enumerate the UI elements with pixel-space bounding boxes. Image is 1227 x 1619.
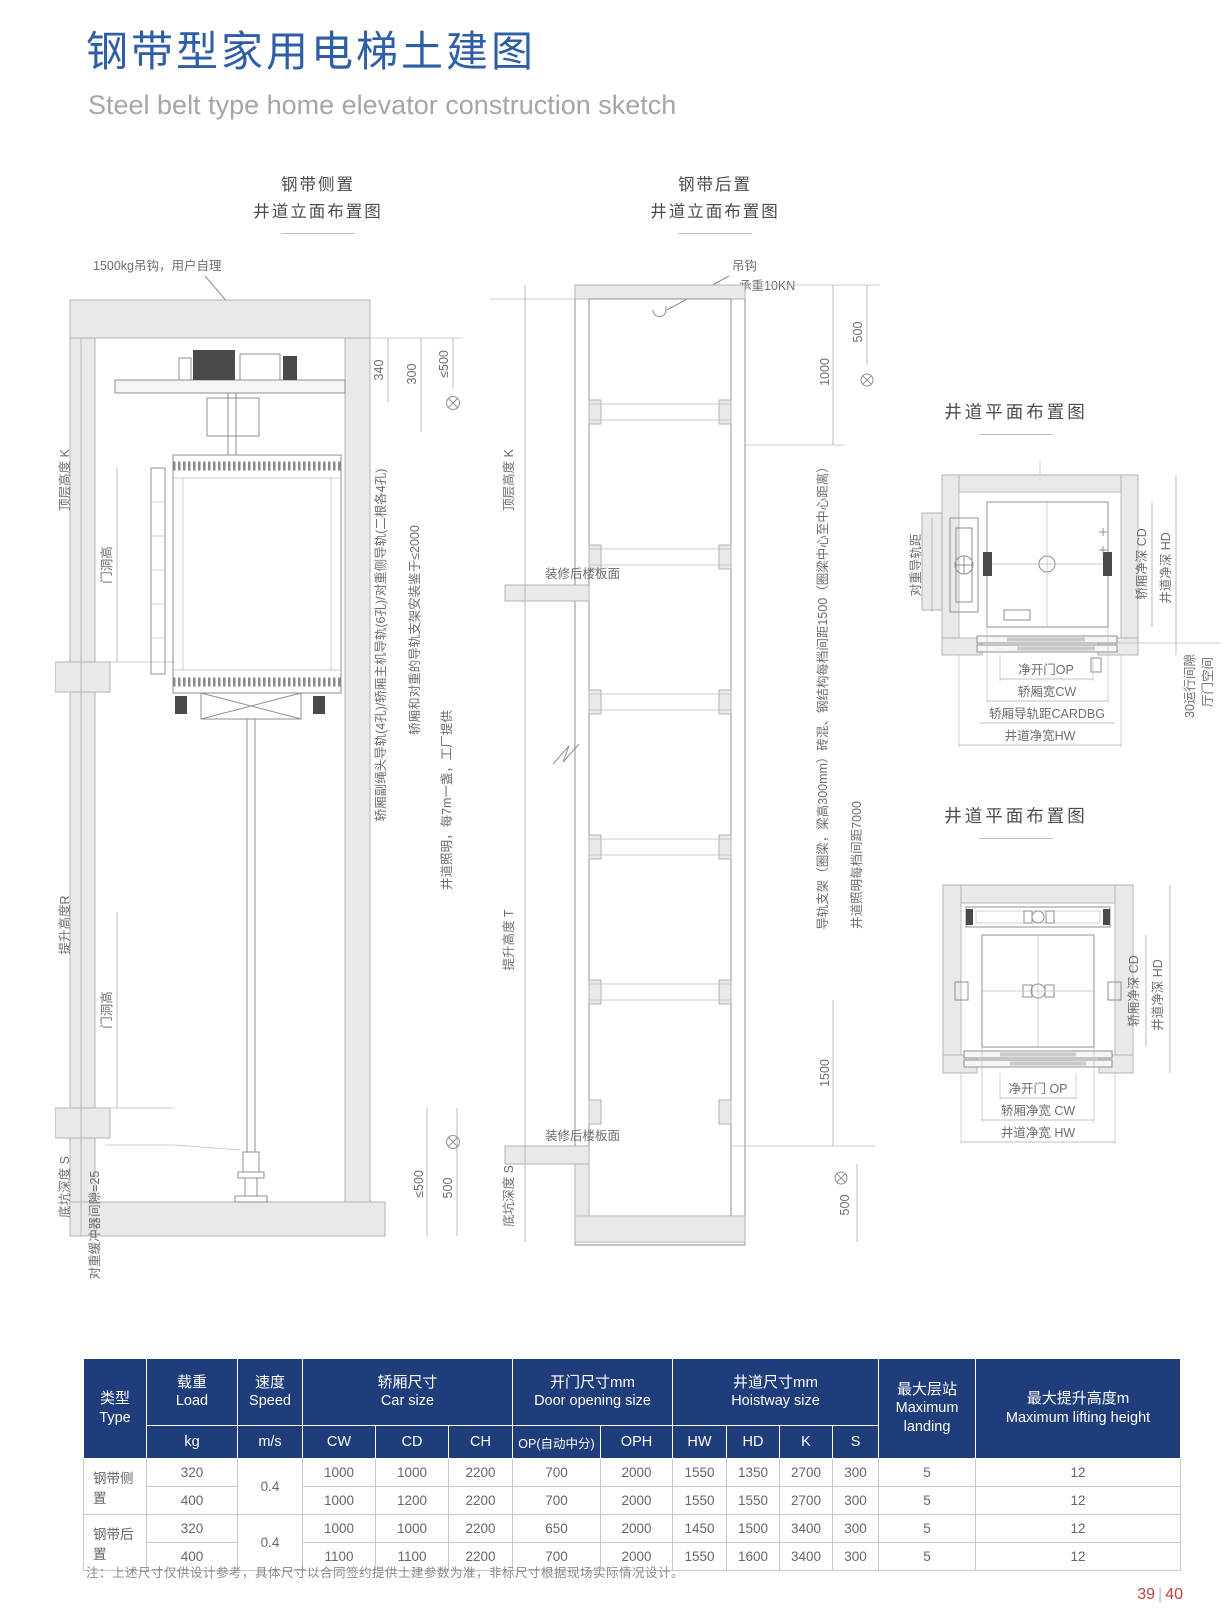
dim-label: 轿厢宽CW — [1018, 684, 1077, 699]
elevation-side-diagram: 1500kg吊钩，用户自理 — [55, 240, 485, 1320]
hook-icon — [653, 306, 666, 317]
th-load: 载重Load — [147, 1359, 238, 1426]
th-ms: m/s — [238, 1426, 303, 1459]
dimensions-right: 1000 500 导轨支架（圈梁，梁高300mm）砖混、钢结构每档间距1500（… — [731, 285, 880, 1242]
title-underline — [678, 233, 752, 234]
page-number-left: 39 — [1137, 1586, 1155, 1603]
dim-label: 500 — [838, 1195, 852, 1216]
plan-bottom-title: 井道平面布置图 — [906, 802, 1126, 839]
cell: 5 — [879, 1543, 976, 1571]
cell: 1550 — [727, 1487, 780, 1515]
dimensions-left: 顶层高度 K 提升高度 T 底坑深度 S — [501, 285, 525, 1242]
dim-label: 净开门 OP — [1008, 1081, 1067, 1096]
floor-note: 装修后楼板面 — [545, 1128, 620, 1143]
cell: 1500 — [727, 1515, 780, 1543]
dim-label: 底坑深度 S — [57, 1156, 72, 1218]
cell: 2000 — [601, 1515, 673, 1543]
hook-note: 1500kg吊钩，用户自理 — [93, 258, 222, 273]
dim-label: 提升高度R — [57, 895, 72, 954]
hook-note: 吊钩 — [732, 259, 757, 273]
cell: 700 — [513, 1487, 601, 1515]
cell: 3400 — [780, 1515, 833, 1543]
elev-side-title: 钢带侧置 井道立面布置图 — [218, 172, 418, 234]
table-footnote: 注：上述尺寸仅供设计参考，具体尺寸以合同签约提供土建参数为准，非标尺寸根据现场实… — [86, 1562, 684, 1581]
buffer — [235, 1152, 267, 1202]
hook-note: 承重10KN — [739, 278, 795, 293]
lamp-icon — [835, 1172, 847, 1184]
table-row: 钢带侧置 320 0.4 1000 1000 2200 700 2000 155… — [84, 1459, 1181, 1487]
car-outline — [955, 935, 1121, 1047]
cell: 12 — [976, 1543, 1181, 1571]
dim-label: 厅门空间 — [1200, 657, 1215, 707]
beam-note: 导轨支架（圈梁，梁高300mm）砖混、钢结构每档间距1500（圈梁中心至中心距离… — [815, 460, 830, 930]
th-speed: 速度Speed — [238, 1359, 303, 1426]
th-hd: HD — [727, 1426, 780, 1459]
cell: 2700 — [780, 1487, 833, 1515]
th-s: S — [833, 1426, 879, 1459]
dim-label: 对重导轨距 — [908, 534, 923, 597]
bracket-note: 轿厢和对重的导轨支架安装鉴于≤2000 — [407, 525, 422, 735]
page: 钢带型家用电梯土建图 Steel belt type home elevator… — [0, 0, 1227, 1619]
cell: 2200 — [449, 1515, 513, 1543]
cell: 1450 — [673, 1515, 727, 1543]
th-max-landing: 最大层站Maximum landing — [879, 1359, 976, 1459]
page-subtitle: Steel belt type home elevator constructi… — [88, 90, 676, 121]
dim-label: 轿厢净深 CD — [1126, 955, 1141, 1027]
elevator-car — [151, 455, 341, 1152]
cell: 5 — [879, 1459, 976, 1487]
page-number-right: 40 — [1165, 1586, 1183, 1603]
buffer-gap-note: 对重缓冲器间隙=25 — [87, 1171, 102, 1280]
cell: 5 — [879, 1515, 976, 1543]
car-outline — [983, 502, 1112, 627]
cell-speed: 0.4 — [238, 1459, 303, 1515]
dim-label: 顶层高度 K — [501, 448, 516, 510]
th-door-size: 开门尺寸mmDoor opening size — [513, 1359, 673, 1426]
cell: 12 — [976, 1487, 1181, 1515]
cell: 1000 — [376, 1459, 449, 1487]
floor-note: 装修后楼板面 — [545, 566, 620, 581]
dim-label: 顶层高度 K — [57, 448, 72, 510]
lamp-icon — [861, 374, 873, 386]
cell: 2200 — [449, 1487, 513, 1515]
elevation-rear-diagram: 吊钩 承重10KN — [485, 240, 890, 1320]
shaft-walls — [490, 285, 745, 1245]
dim-label: 500 — [851, 322, 865, 343]
th-op: OP(自动中分) — [513, 1426, 601, 1459]
dim-label: 500 — [441, 1178, 455, 1199]
cell: 320 — [147, 1459, 238, 1487]
elev-rear-title: 钢带后置 井道立面布置图 — [615, 172, 815, 234]
th-car-size: 轿厢尺寸Car size — [303, 1359, 513, 1426]
th-type: 类型Type — [84, 1359, 147, 1459]
cell: 12 — [976, 1459, 1181, 1487]
cell: 300 — [833, 1543, 879, 1571]
title-underline — [979, 838, 1053, 839]
page-number: 39|40 — [1137, 1586, 1183, 1604]
cell: 1000 — [376, 1515, 449, 1543]
table-row: 钢带后置 320 0.4 1000 1000 2200 650 2000 145… — [84, 1515, 1181, 1543]
dim-label: ≤500 — [412, 1170, 426, 1198]
cell: 1000 — [303, 1459, 376, 1487]
th-ch: CH — [449, 1426, 513, 1459]
plan-bottom-diagram: 轿厢净深 CD 井道净深 HD 净开门 OP 轿厢净宽 CW 井道净宽 HW — [900, 845, 1227, 1175]
dim-label: 340 — [372, 360, 386, 381]
dim-label: 提升高度 T — [501, 909, 516, 970]
cell: 1550 — [673, 1487, 727, 1515]
dim-label: 底坑深度 S — [501, 1165, 516, 1227]
page-title: 钢带型家用电梯土建图 — [86, 18, 536, 79]
th-cw: CW — [303, 1426, 376, 1459]
cell: 300 — [833, 1515, 879, 1543]
ring-beams — [589, 400, 731, 1124]
cell: 700 — [513, 1459, 601, 1487]
dim-label: 净开门OP — [1018, 662, 1074, 677]
dim-label: 1000 — [818, 358, 832, 386]
dim-label: 门洞高 — [99, 991, 114, 1029]
cell: 650 — [513, 1515, 601, 1543]
dim-label: 30运行间隙 — [1183, 654, 1197, 718]
cell: 1600 — [727, 1543, 780, 1571]
cell: 3400 — [780, 1543, 833, 1571]
door-sill — [964, 1051, 1112, 1067]
dimensions: 轿厢净深 CD 井道净深 HD 净开门 OP 轿厢净宽 CW 井道净宽 HW — [961, 885, 1170, 1144]
dim-label: 轿厢净深 CD — [1134, 528, 1149, 600]
dim-label: 井道净深 HD — [1159, 532, 1173, 604]
lighting-note: 井道照明，每7m一盏，工厂提供 — [439, 710, 454, 890]
dimensions-right: 340 300 ≤500 轿厢副绳头导轨(4孔)/轿厢主机导轨(6孔)/对重侧导… — [372, 338, 460, 1236]
cell: 320 — [147, 1515, 238, 1543]
dim-label: 井道净深 HD — [1151, 959, 1165, 1031]
cell: 400 — [147, 1487, 238, 1515]
th-k: K — [780, 1426, 833, 1459]
th-max-lifting: 最大提升高度mMaximum lifting height — [976, 1359, 1181, 1459]
rail-note: 轿厢副绳头导轨(4孔)/轿厢主机导轨(6孔)/对重侧导轨(二根各4孔) — [373, 469, 388, 822]
machine-unit — [115, 350, 345, 455]
cell: 2700 — [780, 1459, 833, 1487]
counterweight — [966, 907, 1110, 927]
th-hoistway-size: 井道尺寸mmHoistway size — [673, 1359, 879, 1426]
cell: 2000 — [601, 1459, 673, 1487]
cell: 2000 — [601, 1487, 673, 1515]
th-oph: OPH — [601, 1426, 673, 1459]
cell: 1000 — [303, 1515, 376, 1543]
th-hw: HW — [673, 1426, 727, 1459]
title-underline — [281, 233, 355, 234]
cell: 1000 — [303, 1487, 376, 1515]
title-underline — [979, 434, 1053, 435]
cell: 1550 — [673, 1459, 727, 1487]
dim-label: 井道净宽 HW — [1001, 1125, 1076, 1140]
shaft-walls — [55, 300, 463, 1236]
dim-label: ≤500 — [437, 350, 451, 378]
cell: 1200 — [376, 1487, 449, 1515]
page-number-divider: | — [1155, 1586, 1165, 1603]
cell: 300 — [833, 1459, 879, 1487]
cell: 5 — [879, 1487, 976, 1515]
th-kg: kg — [147, 1426, 238, 1459]
cell: 1350 — [727, 1459, 780, 1487]
lamp-icon — [447, 1136, 460, 1149]
dim-label: 井道净宽HW — [1005, 728, 1076, 743]
lighting-note: 井道照明每档间距7000 — [849, 801, 864, 929]
spec-table: 类型Type 载重Load 速度Speed 轿厢尺寸Car size 开门尺寸m… — [83, 1358, 1181, 1571]
plan-top-title: 井道平面布置图 — [906, 398, 1126, 435]
cell: 300 — [833, 1487, 879, 1515]
cell: 12 — [976, 1515, 1181, 1543]
plan-top-diagram: 对重导轨距 轿厢净深 CD 井道净深 HD 净开门OP 轿厢宽CW 轿厢导轨距C… — [900, 440, 1227, 785]
dim-label: 1500 — [818, 1059, 832, 1087]
th-cd: CD — [376, 1426, 449, 1459]
dim-label: 门洞高 — [99, 546, 114, 584]
dim-label: 300 — [405, 364, 419, 385]
dim-label: 轿厢导轨距CARDBG — [989, 706, 1105, 721]
lamp-icon — [447, 397, 460, 410]
dim-label: 轿厢净宽 CW — [1001, 1103, 1076, 1118]
cell: 2200 — [449, 1459, 513, 1487]
cell-type: 钢带侧置 — [84, 1459, 147, 1515]
